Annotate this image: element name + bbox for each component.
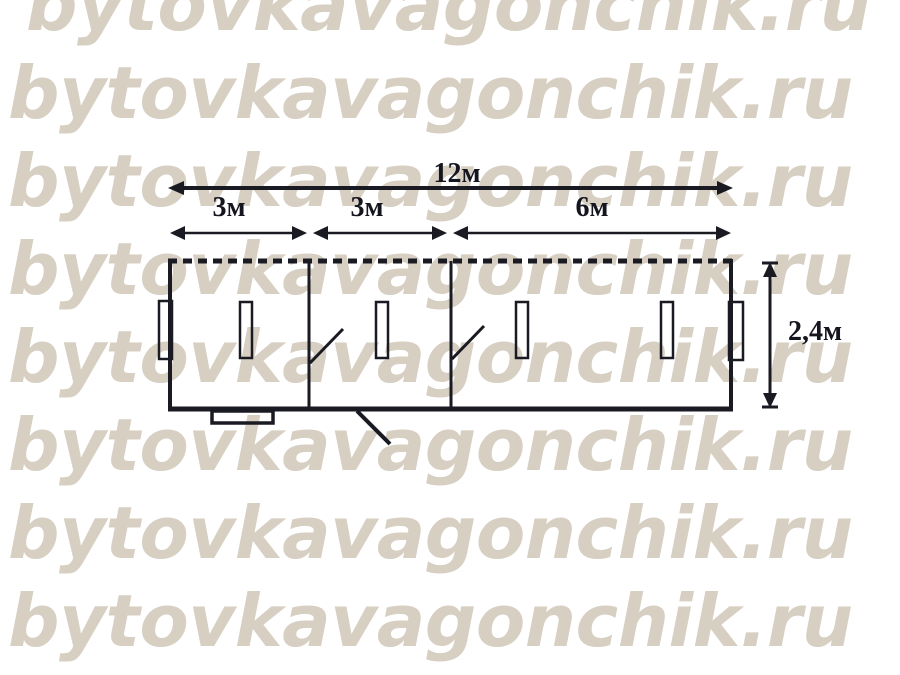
window-icon-section-2 (376, 302, 388, 358)
dimension-label-total: 12м (433, 158, 480, 189)
arrowhead-left-icon (170, 226, 185, 240)
door-swing-entrance (357, 411, 390, 444)
dimension-label-section-3: 6м (575, 192, 608, 223)
dimension-height: 2,4м (762, 262, 842, 408)
arrowhead-right-icon (292, 226, 307, 240)
window-icon-section-3b (661, 302, 673, 358)
arrowhead-left-icon (168, 181, 184, 195)
porch-step (212, 411, 273, 423)
watermarked-floor-plan-image: bytovkavagonchik.ru bytovkavagonchik.ru … (0, 0, 900, 675)
window-icon-section-1 (240, 302, 252, 358)
arrowhead-right-icon (716, 226, 731, 240)
arrowhead-right-icon (717, 181, 733, 195)
arrowhead-left-icon (453, 226, 468, 240)
dimension-label-height: 2,4м (788, 316, 842, 347)
door-swing-partition-1 (310, 329, 343, 363)
window-icon-section-3a (516, 302, 528, 358)
arrowhead-right-icon (432, 226, 447, 240)
floor-plan-drawing: 12м 3м 3м 6м (0, 0, 900, 675)
dimension-label-section-2: 3м (350, 192, 383, 223)
dimension-total-length: 12м (168, 158, 733, 195)
dimension-sections: 3м 3м 6м (170, 192, 731, 240)
dimension-label-section-1: 3м (212, 192, 245, 223)
door-swing-partition-2 (452, 326, 484, 359)
arrowhead-left-icon (313, 226, 328, 240)
